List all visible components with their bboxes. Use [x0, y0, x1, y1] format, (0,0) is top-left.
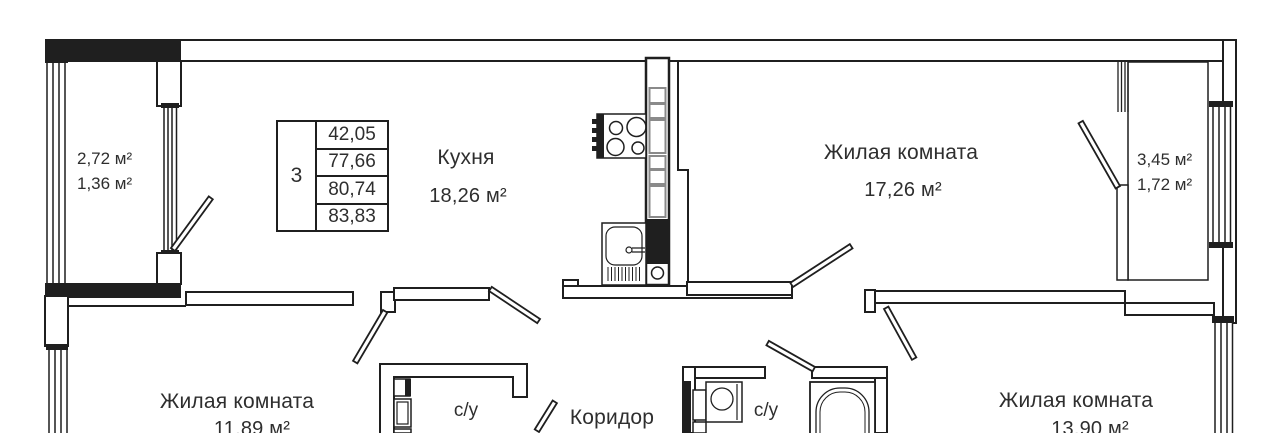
- living-bottom-left-area: 11,89 м²: [214, 418, 290, 433]
- bathtub-icon: [810, 382, 875, 433]
- living-bottom-right-label: Жилая комната: [999, 389, 1153, 413]
- floor-plan-drawing: [0, 0, 1280, 433]
- kitchen-label: Кухня: [437, 146, 494, 170]
- living-top-label: Жилая комната: [824, 141, 978, 165]
- door-bathroom-right-icon: [766, 341, 815, 371]
- door-kitchen-icon: [489, 287, 540, 323]
- toilet-icon: [693, 382, 742, 433]
- door-living-top-icon: [790, 244, 852, 287]
- window-balcony-right: [1209, 101, 1233, 248]
- balcony-right-label: 3,45 м² 1,72 м²: [1137, 147, 1192, 197]
- balcony-left-area1: 2,72 м²: [77, 146, 132, 171]
- area-value: 42,05: [317, 122, 387, 150]
- kitchen-area: 18,26 м²: [429, 185, 507, 208]
- living-bottom-right-area: 13,90 м²: [1051, 418, 1129, 433]
- balcony-right-area1: 3,45 м²: [1137, 147, 1192, 172]
- window-balcony-left-divider: [157, 61, 181, 284]
- rooms-count: 3: [278, 122, 317, 230]
- stove-icon: [592, 114, 646, 158]
- window-room-bottom-left: [46, 344, 68, 433]
- balcony-left-area2: 1,36 м²: [77, 171, 132, 196]
- balcony-right-area2: 1,72 м²: [1137, 172, 1192, 197]
- area-summary-table: 3 42,05 77,66 80,74 83,83: [276, 120, 389, 232]
- window-balcony-left: [45, 57, 68, 283]
- bathroom-left-label: с/у: [454, 400, 478, 422]
- door-room-bottom-left-icon: [353, 310, 387, 363]
- living-top-area: 17,26 м²: [864, 179, 942, 202]
- bathroom-right-label: с/у: [754, 400, 778, 422]
- area-value: 80,74: [317, 177, 387, 205]
- door-corridor-icon: [535, 400, 557, 432]
- vent-shaft: [646, 58, 669, 285]
- area-value: 83,83: [317, 205, 387, 231]
- area-value: 77,66: [317, 150, 387, 178]
- sink-icon: [602, 223, 646, 285]
- corridor-label: Коридор: [570, 406, 654, 430]
- window-balcony-right-divider: [1117, 62, 1128, 112]
- balcony-left-label: 2,72 м² 1,36 м²: [77, 146, 132, 196]
- living-bottom-left-label: Жилая комната: [160, 390, 314, 414]
- washer-left-icon: [394, 379, 411, 433]
- window-room-bottom-right: [1212, 316, 1234, 433]
- floor-plan: 3 42,05 77,66 80,74 83,83 2,72 м² 1,36 м…: [0, 0, 1280, 433]
- door-balcony-right-icon: [1078, 121, 1120, 189]
- door-room-bottom-right-icon: [884, 307, 916, 360]
